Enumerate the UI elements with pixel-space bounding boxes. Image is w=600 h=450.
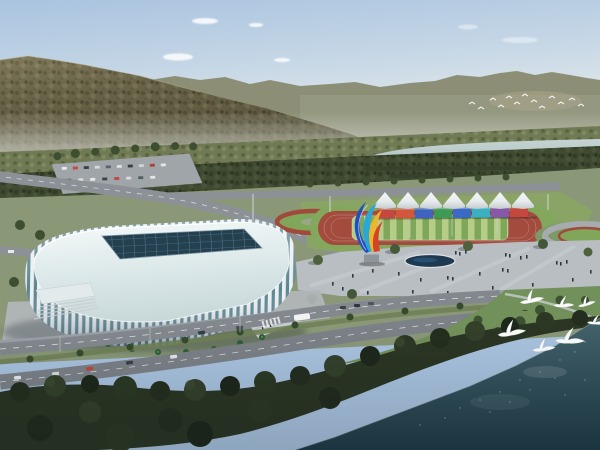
stand-block <box>472 208 490 218</box>
canopy-tent <box>443 192 465 209</box>
canopy-row <box>374 192 534 209</box>
stand-block <box>453 208 471 218</box>
ribbon-sculpture-graphic <box>344 195 394 267</box>
vignette <box>0 0 600 450</box>
stand-block <box>415 208 433 218</box>
ribbon-sculpture <box>344 195 394 267</box>
stand-block <box>434 208 452 218</box>
landscape-graphic <box>0 0 600 450</box>
aerial-rendering-scene <box>0 0 600 450</box>
canopy-tent <box>512 192 534 209</box>
canopy-tent <box>397 192 419 209</box>
canopy-tent <box>489 192 511 209</box>
canopy-tent <box>466 192 488 209</box>
canopy-tent <box>420 192 442 209</box>
stand-block <box>396 208 414 218</box>
